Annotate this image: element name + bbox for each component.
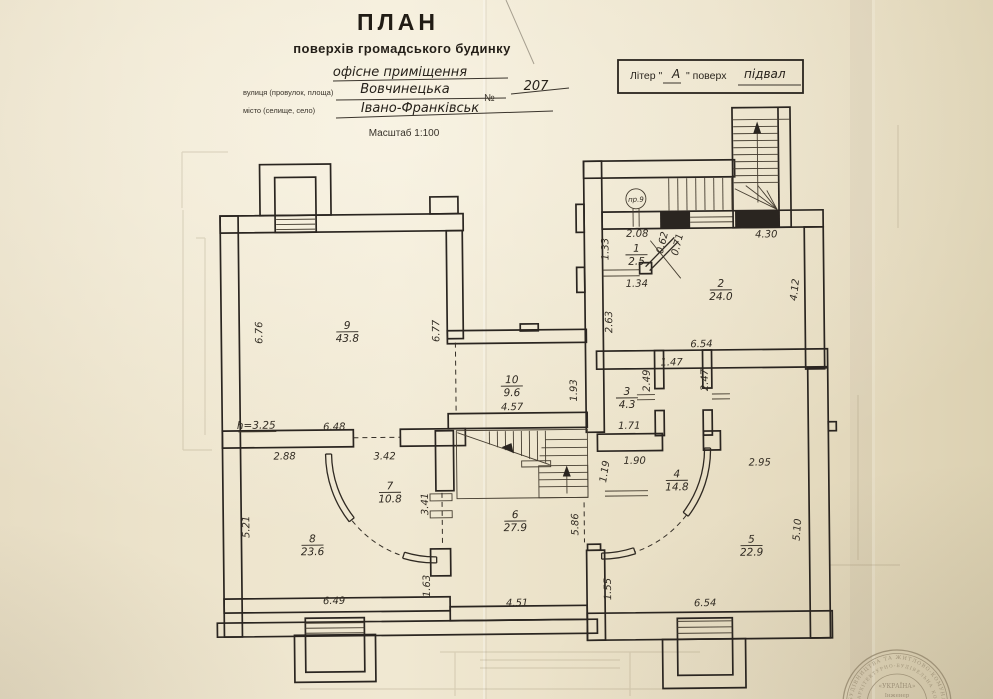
dim-label: 2.63 <box>604 311 615 333</box>
svg-text:27.9: 27.9 <box>504 522 528 534</box>
dim-label: 6.54 <box>694 598 716 609</box>
dim-label: 6.49 <box>323 596 345 607</box>
svg-text:2: 2 <box>717 278 724 290</box>
dim-label: 4.51 <box>506 598 528 609</box>
svg-text:4.3: 4.3 <box>619 399 636 411</box>
title-block: ПЛАН поверхів громадського будинку офісн… <box>243 9 569 139</box>
dim-label: 1.93 <box>569 379 580 401</box>
reference-circle: пр.9 <box>626 189 646 227</box>
scale-note: Масштаб 1:100 <box>369 127 440 139</box>
liter-box: Літер " А " поверх підвал <box>618 60 803 93</box>
svg-text:10.8: 10.8 <box>378 493 402 505</box>
svg-text:10: 10 <box>505 374 519 386</box>
svg-text:3: 3 <box>624 386 631 398</box>
dim-label: 2.47 <box>700 368 711 391</box>
svg-text:22.9: 22.9 <box>740 546 764 558</box>
thin-details <box>602 217 736 496</box>
dim-label: 1.55 <box>603 578 614 600</box>
stamp-org-name: «УКРАЇНА» <box>878 683 915 690</box>
scanned-floorplan-sheet: ПЛАН поверхів громадського будинку офісн… <box>0 0 993 699</box>
dashed-openings <box>352 341 584 547</box>
svg-text:14.8: 14.8 <box>665 481 689 493</box>
floor-plan: пр.9 h=3.25 943.8109.612.5224.034.3414.8… <box>212 107 839 693</box>
svg-text:7: 7 <box>386 480 393 492</box>
premise-type: офісне приміщення <box>333 65 467 80</box>
dim-label: 1.33 <box>600 238 611 260</box>
dim-label: 4.12 <box>789 278 802 301</box>
room-label-7: 710.8 <box>378 480 402 505</box>
walls <box>213 159 839 644</box>
room-label-10: 109.6 <box>501 374 523 399</box>
page-title: ПЛАН <box>357 9 439 35</box>
dim-label: 6.54 <box>690 339 712 350</box>
dim-label: 6.76 <box>254 322 265 344</box>
room-label-2: 224.0 <box>709 278 733 303</box>
liter-value: А <box>671 67 680 81</box>
svg-text:23.6: 23.6 <box>301 546 325 558</box>
floor-label: " поверх <box>686 70 727 82</box>
room-label-9: 943.8 <box>335 320 359 345</box>
dim-label: 2.95 <box>748 457 770 468</box>
dim-label: 6.48 <box>323 422 345 433</box>
room-labels: 943.8109.612.5224.034.3414.8522.9627.971… <box>298 241 764 563</box>
dim-label: 5.10 <box>792 518 805 541</box>
dim-label: 1.47 <box>660 357 683 368</box>
svg-text:9: 9 <box>344 320 351 332</box>
city-label: місто (селище, село) <box>243 106 316 115</box>
dim-label: 1.90 <box>623 456 645 467</box>
dim-label: 1.34 <box>626 279 648 290</box>
window-well-southeast <box>662 618 746 689</box>
stamp-role-line1: Інженер <box>885 693 910 699</box>
dim-label: 4.57 <box>501 402 524 413</box>
street-value: Вовчинецька <box>360 82 450 97</box>
svg-text:2.5: 2.5 <box>628 256 645 268</box>
svg-text:9.6: 9.6 <box>504 387 521 399</box>
dim-label: 6.77 <box>431 319 442 342</box>
room-label-4: 414.8 <box>665 468 689 493</box>
room-label-6: 627.9 <box>503 509 527 534</box>
street-label: вулиця (провулок, площа) <box>243 88 334 97</box>
svg-text:4: 4 <box>673 468 680 480</box>
dim-label: 0.71 <box>670 233 686 257</box>
dim-label: 5.86 <box>570 513 581 535</box>
reference-circle-label: пр.9 <box>628 196 644 204</box>
svg-text:8: 8 <box>309 533 316 545</box>
dim-label: 2.49 <box>642 369 653 391</box>
staircase-central <box>456 429 588 498</box>
curved-partition-right <box>601 448 712 559</box>
dim-label: 2.08 <box>626 229 648 240</box>
dim-label: 4.30 <box>755 229 777 240</box>
dim-label: 1.19 <box>598 460 612 484</box>
floorplan-drawing: ПЛАН поверхів громадського будинку офісн… <box>0 0 993 699</box>
svg-text:5: 5 <box>748 534 755 546</box>
svg-text:24.0: 24.0 <box>709 291 733 303</box>
svg-text:43.8: 43.8 <box>336 333 360 345</box>
window-well-southwest <box>294 618 376 683</box>
svg-text:6: 6 <box>512 509 519 521</box>
north-protrusion <box>260 164 332 233</box>
dim-label: 3.42 <box>373 451 395 462</box>
number-label: № <box>484 93 495 104</box>
room-label-8: 823.6 <box>301 533 325 558</box>
page-subtitle: поверхів громадського будинку <box>293 41 511 56</box>
floor-value: підвал <box>744 67 786 81</box>
liter-label: Літер " <box>630 70 663 82</box>
room-label-1: 12.5 <box>625 243 647 268</box>
room-label-5: 522.9 <box>740 533 764 558</box>
dim-label: 1.71 <box>618 421 640 432</box>
dim-label: 2.88 <box>273 451 295 462</box>
dim-label: 5.21 <box>241 516 252 538</box>
height-note: h=3.25 <box>237 420 277 432</box>
dim-label: 1.63 <box>422 575 433 597</box>
svg-text:h=3.25: h=3.25 <box>237 420 276 432</box>
dim-label: 3.41 <box>420 493 431 515</box>
room-label-3: 34.3 <box>616 386 638 411</box>
svg-text:1: 1 <box>633 243 640 255</box>
